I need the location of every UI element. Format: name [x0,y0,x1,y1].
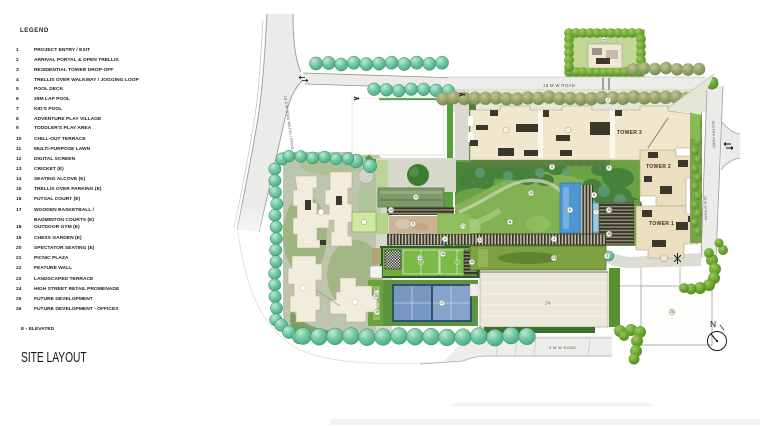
svg-text:15: 15 [607,208,611,212]
svg-text:TOWER 3: TOWER 3 [617,130,642,136]
svg-text:13: 13 [418,256,422,260]
svg-text:11: 11 [508,220,512,224]
svg-text:26: 26 [670,310,674,314]
svg-text:6: 6 [569,208,571,212]
svg-text:17: 17 [440,301,444,305]
svg-text:18: 18 [374,294,378,298]
svg-text:9: 9 [608,166,610,170]
svg-text:15: 15 [607,232,611,236]
svg-text:7: 7 [595,210,597,214]
svg-text:3: 3 [606,254,608,258]
svg-text:8: 8 [551,165,553,169]
svg-text:23: 23 [552,256,556,260]
svg-text:18 M W ROAD: 18 M W ROAD [543,83,575,88]
svg-text:25: 25 [602,39,606,43]
svg-text:16: 16 [441,252,445,256]
svg-text:5: 5 [593,193,595,197]
svg-text:2: 2 [607,98,609,102]
svg-text:10: 10 [529,191,533,195]
svg-text:21: 21 [461,224,465,228]
svg-text:18.3 M WIDE MAJIVLI ROAD: 18.3 M WIDE MAJIVLI ROAD [283,96,295,151]
svg-text:22: 22 [478,238,482,242]
svg-text:TOWER 2: TOWER 2 [646,164,671,170]
svg-text:N: N [710,319,716,329]
svg-text:9 M W ROAD: 9 M W ROAD [549,345,576,350]
svg-text:20: 20 [470,260,474,264]
svg-text:9: 9 [412,222,414,226]
svg-text:19: 19 [375,310,379,314]
svg-text:12: 12 [414,195,418,199]
svg-text:4: 4 [553,237,555,241]
svg-text:24: 24 [545,301,551,307]
svg-text:14: 14 [389,208,393,212]
svg-text:TOWER 1: TOWER 1 [649,221,674,227]
svg-text:4: 4 [444,237,446,241]
